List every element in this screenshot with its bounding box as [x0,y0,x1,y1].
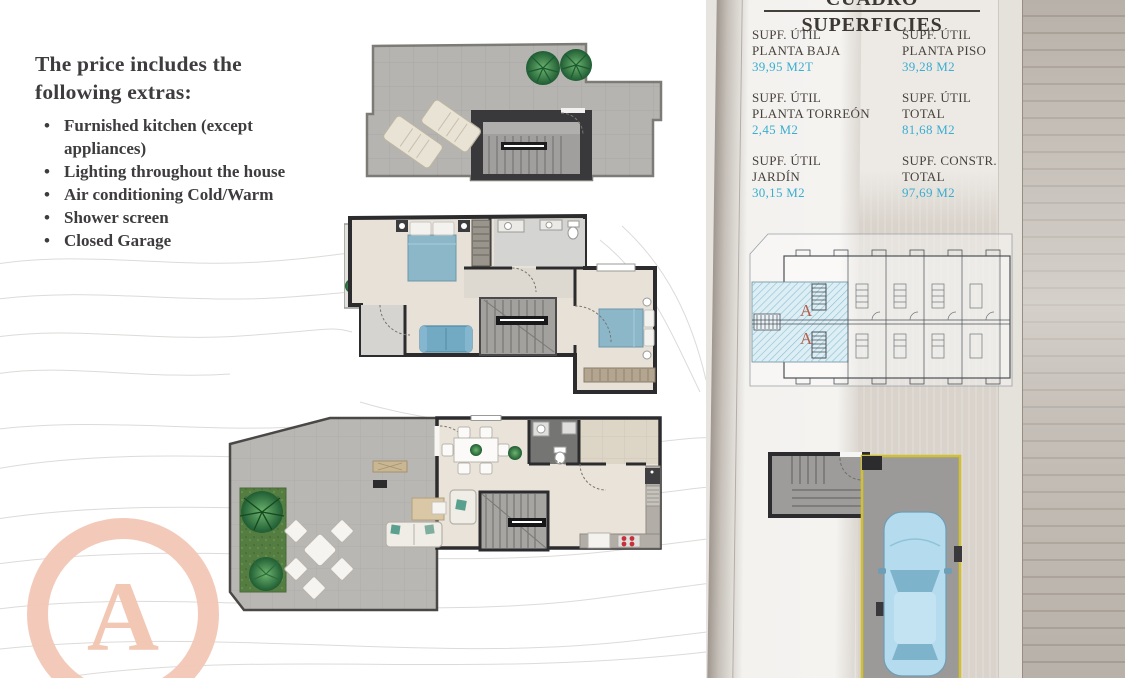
sofa [386,522,442,547]
garden-plant [249,557,283,591]
roof-terrace-floor-plan [365,38,665,184]
area-cell: SUPF. ÚTIL PLANTA PISO 39,28 M2 [902,27,1024,90]
area-cell: SUPF. ÚTIL PLANTA TORREÓN 2,45 M2 [752,90,902,153]
window [597,264,635,271]
superficies-table: SUPF. ÚTIL PLANTA BAJA 39,95 M2T SUPF. Ú… [752,27,1024,216]
indoor-plant [508,446,522,460]
area-value: 2,45 M2 [752,122,902,138]
stairs [480,492,548,550]
wardrobe [472,220,490,266]
watermark-letter: A [48,547,198,678]
brochure-page: A The price includes the following extra… [0,0,1125,678]
area-value: 97,69 M2 [902,185,1024,201]
car-mirror [878,568,886,574]
unit-label: A [800,329,813,348]
ground-floor-plan [228,414,664,614]
extras-item: Lighting throughout the house [35,160,334,183]
area-value: 39,95 M2T [752,59,902,75]
bathroom [529,420,579,464]
terrace-plant [560,49,592,81]
area-cell: SUPF. CONSTR. TOTAL 97,69 M2 [902,153,1024,216]
terrace-plant [526,51,560,85]
extras-item: Closed Garage [35,229,334,252]
garage-plan [762,450,968,678]
car-mirror [944,568,952,574]
garage-stairs [770,452,868,516]
wardrobe [584,368,655,382]
first-floor-plan [344,210,660,396]
armchair [450,490,476,524]
stairwell [471,108,592,180]
extras-item: Shower screen [35,206,334,229]
patio-door [435,426,440,456]
extras-item: Air conditioning Cold/Warm [35,183,334,206]
area-value: 81,68 M2 [902,122,1024,138]
tv-sideboard [373,461,407,472]
area-value: 30,15 M2 [752,185,902,201]
extras-heading: The price includes the following extras: [35,50,285,106]
highlighted-unit: A A [752,282,848,362]
car [878,512,952,676]
superficies-title: CUADRO SUPERFICIES [764,0,980,12]
coffee-table [412,498,446,520]
extras-list: Furnished kitchen (except appliances) Li… [35,114,340,252]
area-cell: SUPF. ÚTIL JARDÍN 30,15 M2 [752,153,902,216]
area-cell: SUPF. ÚTIL TOTAL 81,68 M2 [902,90,1024,153]
sofa [420,326,472,352]
cooktop [618,535,640,547]
area-cell: SUPF. ÚTIL PLANTA BAJA 39,95 M2T [752,27,902,90]
extras-item: Furnished kitchen (except appliances) [35,114,334,160]
area-value: 39,28 M2 [902,59,1024,75]
site-plan: A A [748,226,1016,396]
stone-wall-texture [1022,0,1125,678]
stairs [480,298,556,355]
window [471,416,501,421]
unit-label: A [800,301,813,320]
price-extras-section: The price includes the following extras:… [35,50,340,252]
